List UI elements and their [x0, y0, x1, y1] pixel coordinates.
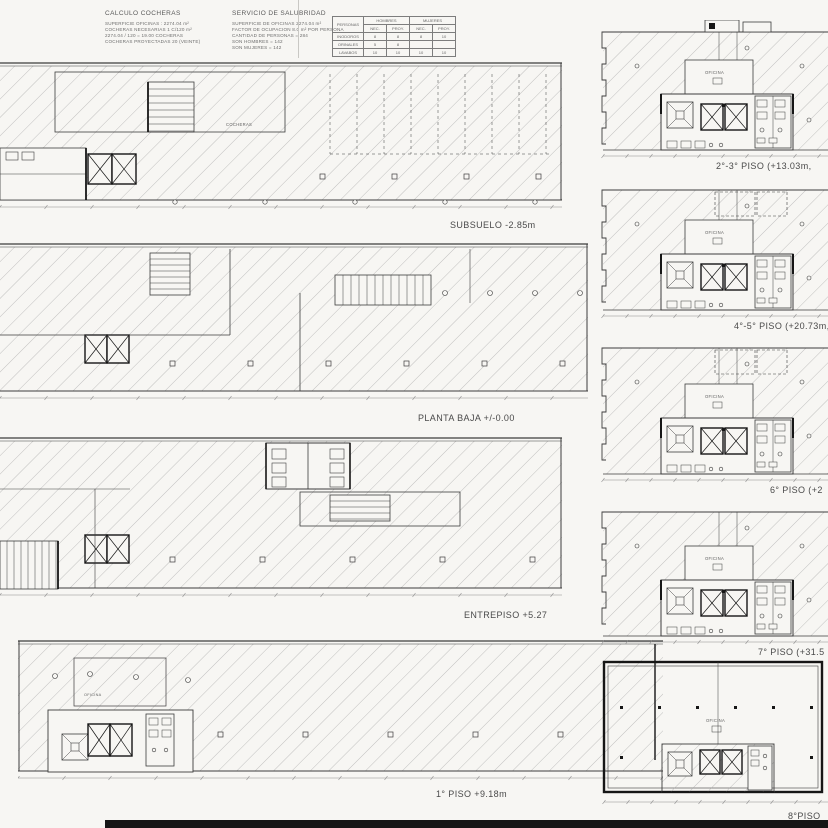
- label-subsuelo: SUBSUELO -2.85m: [450, 220, 536, 230]
- text-line: SON MUJERES = 142: [232, 45, 344, 51]
- servicio-title: SERVICIO DE SALUBRIDAD: [232, 10, 344, 17]
- label-piso-4-5: 4°-5° PISO (+20.73m,+: [734, 321, 828, 331]
- label-piso-1: 1° PISO +9.18m: [436, 789, 507, 799]
- label-piso-7: 7° PISO (+31.5: [758, 647, 824, 657]
- floorplan-piso-1: OFICINA: [18, 640, 663, 785]
- plan-drawing-piso23: OFICINA: [597, 20, 828, 160]
- text-line: COCHERAS PROYECTADAS 20 (VEINTE): [105, 39, 200, 45]
- table-cell: NEC.: [410, 25, 433, 33]
- plan-sheet: CALCULO COCHERAS SUPERFICIE OFICINAS : 2…: [0, 0, 828, 828]
- table-cell: 10: [364, 49, 387, 57]
- table-cell: [410, 41, 433, 49]
- plan-drawing-entrepiso: [0, 437, 562, 602]
- table-row: INODOROS88810: [333, 33, 456, 41]
- plan-drawing-piso45: OFICINA: [597, 178, 828, 320]
- scan-edge-artifact: [105, 820, 828, 828]
- table-row: LAVABOS10101010: [333, 49, 456, 57]
- table-cell: PROY.: [387, 25, 410, 33]
- table-cell: 5: [364, 41, 387, 49]
- plan-drawing-piso1: OFICINA: [18, 640, 663, 785]
- table-cell: 8: [387, 33, 410, 41]
- table-cell: 10: [433, 49, 456, 57]
- label-piso-2-3: 2°-3° PISO (+13.03m,: [716, 161, 812, 171]
- floorplan-planta-baja: [0, 243, 588, 405]
- table-cell: 8: [387, 41, 410, 49]
- svg-text:OFICINA: OFICINA: [705, 556, 724, 561]
- floorplan-piso-4-5: OFICINA: [597, 178, 828, 320]
- table-row: ORINALES58: [333, 41, 456, 49]
- label-entrepiso: ENTREPISO +5.27: [464, 610, 547, 620]
- label-piso-6: 6° PISO (+2: [770, 485, 823, 495]
- floorplan-piso-2-3: OFICINA: [597, 20, 828, 160]
- floorplan-piso-7: OFICINA: [597, 500, 828, 646]
- fold-line: [298, 0, 299, 58]
- table-cell: 10: [387, 49, 410, 57]
- table-cell: LAVABOS: [333, 49, 364, 57]
- table-cell: INODOROS: [333, 33, 364, 41]
- plan-drawing-piso8: OFICINA: [600, 660, 828, 808]
- svg-text:OFICINA: OFICINA: [84, 693, 102, 697]
- table-cell: MUJERES: [410, 17, 456, 25]
- calculo-title: CALCULO COCHERAS: [105, 10, 200, 17]
- floorplan-entrepiso: [0, 437, 562, 602]
- svg-text:OFICINA: OFICINA: [706, 718, 725, 723]
- table-cell: 10: [410, 49, 433, 57]
- servicio-lines: SUPERFICIE DE OFICINAS 2274.04 m²FACTOR …: [232, 21, 344, 51]
- calculo-cocheras-block: CALCULO COCHERAS SUPERFICIE OFICINAS : 2…: [105, 10, 200, 45]
- table-cell: PERSONAS: [333, 17, 364, 33]
- servicio-salubridad-block: SERVICIO DE SALUBRIDAD SUPERFICIE DE OFI…: [232, 10, 344, 51]
- table-cell: 10: [433, 33, 456, 41]
- floorplan-subsuelo: COCHERAS: [0, 62, 562, 214]
- plan-drawing-piso7: OFICINA: [597, 500, 828, 646]
- table-cell: HOMBRES: [364, 17, 410, 25]
- table-cell: PROY.: [433, 25, 456, 33]
- table-cell: [433, 41, 456, 49]
- table-cell: ORINALES: [333, 41, 364, 49]
- plan-drawing-subsuelo: COCHERAS: [0, 62, 562, 214]
- floorplan-piso-6: OFICINA: [597, 336, 828, 484]
- sanitary-fixtures-table: PERSONASHOMBRESMUJERESNEC.PROY.NEC.PROY.…: [332, 16, 456, 57]
- plan-drawing-piso6: OFICINA: [597, 336, 828, 484]
- table-cell: NEC.: [364, 25, 387, 33]
- table-cell: 8: [364, 33, 387, 41]
- calculo-lines: SUPERFICIE OFICINAS : 2274.04 m²COCHERAS…: [105, 21, 200, 45]
- label-planta-baja: PLANTA BAJA +/-0.00: [418, 413, 515, 423]
- plan-drawing-plantabaja: [0, 243, 588, 405]
- svg-text:OFICINA: OFICINA: [705, 230, 724, 235]
- svg-text:COCHERAS: COCHERAS: [226, 122, 252, 127]
- table-cell: 8: [410, 33, 433, 41]
- floorplan-piso-8: OFICINA: [600, 660, 828, 808]
- svg-text:OFICINA: OFICINA: [705, 70, 724, 75]
- svg-text:OFICINA: OFICINA: [705, 394, 724, 399]
